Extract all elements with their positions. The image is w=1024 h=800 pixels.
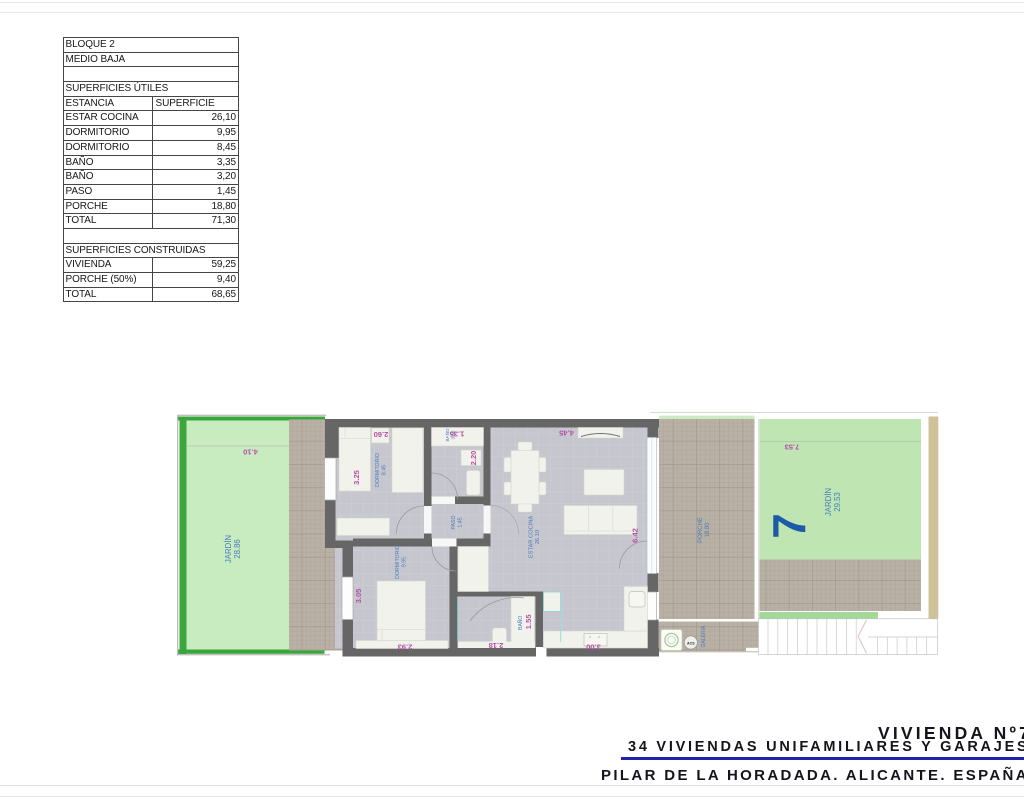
svg-text:3.00: 3.00 [586, 643, 601, 652]
svg-text:29.53: 29.53 [833, 492, 842, 512]
svg-text:2.60: 2.60 [374, 430, 389, 439]
svg-text:3.25: 3.25 [352, 469, 361, 485]
svg-text:8.45: 8.45 [382, 465, 388, 475]
svg-text:4.10: 4.10 [243, 447, 258, 456]
svg-text:ESTAR COCINA: ESTAR COCINA [529, 516, 535, 558]
svg-text:2.18: 2.18 [489, 641, 504, 650]
svg-text:GALERIA: GALERIA [701, 625, 707, 647]
svg-text:2.93: 2.93 [398, 643, 413, 652]
svg-text:1.45: 1.45 [458, 517, 464, 527]
svg-text:3.05: 3.05 [354, 588, 363, 604]
svg-text:18.80: 18.80 [705, 522, 711, 538]
svg-text:PASO: PASO [451, 515, 457, 529]
svg-text:3.35: 3.35 [451, 430, 456, 439]
svg-text:ACS: ACS [687, 641, 695, 645]
svg-text:26.10: 26.10 [535, 530, 541, 544]
svg-text:DORMITORIO: DORMITORIO [375, 453, 381, 487]
svg-text:6.42: 6.42 [631, 528, 640, 543]
svg-text:4.45: 4.45 [558, 428, 574, 437]
svg-text:9.95: 9.95 [402, 557, 408, 567]
svg-text:PORCHE: PORCHE [698, 517, 704, 543]
svg-text:JARDÍN: JARDÍN [824, 488, 833, 516]
svg-text:1.55: 1.55 [524, 614, 533, 630]
svg-text:2.20: 2.20 [469, 451, 478, 466]
svg-text:28.86: 28.86 [233, 539, 242, 559]
svg-text:BAÑO: BAÑO [444, 428, 450, 441]
svg-text:BAÑO: BAÑO [517, 616, 524, 630]
svg-text:7: 7 [763, 513, 815, 539]
svg-text:DORMITORIO: DORMITORIO [395, 545, 401, 579]
svg-text:JARDÍN: JARDÍN [224, 535, 233, 563]
svg-text:7.53: 7.53 [785, 442, 800, 451]
